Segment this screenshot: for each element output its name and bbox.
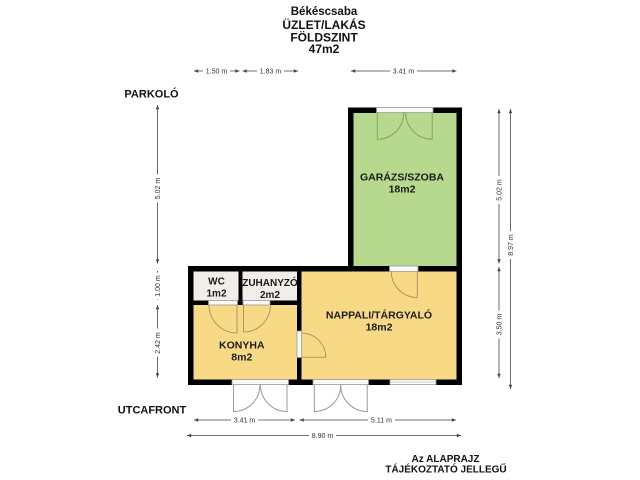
svg-text:GARÁZS/SZOBA: GARÁZS/SZOBA [360,171,444,184]
svg-text:5.02 m: 5.02 m [497,179,504,201]
svg-text:18m2: 18m2 [366,322,393,334]
svg-text:47m2: 47m2 [309,42,340,56]
svg-text:UTCAFRONT: UTCAFRONT [118,405,187,417]
svg-text:1.00 m: 1.00 m [155,275,162,297]
svg-text:5.02 m: 5.02 m [155,178,162,200]
svg-text:PARKOLÓ: PARKOLÓ [124,88,179,101]
svg-text:3.41 m: 3.41 m [393,69,415,76]
svg-text:1.50 m: 1.50 m [206,69,228,76]
svg-text:Az ALAPRAJZ: Az ALAPRAJZ [412,454,480,465]
svg-text:ZUHANYZÓ: ZUHANYZÓ [242,276,298,289]
svg-text:WC: WC [208,277,225,288]
svg-text:8.97 m: 8.97 m [508,234,515,256]
svg-text:8.90 m: 8.90 m [312,433,334,440]
svg-text:1m2: 1m2 [206,289,226,300]
svg-text:1.83 m: 1.83 m [260,69,282,76]
svg-text:TÁJÉKOZTATÓ JELLEGŰ: TÁJÉKOZTATÓ JELLEGŰ [385,463,506,476]
svg-text:18m2: 18m2 [389,184,416,196]
svg-text:2m2: 2m2 [260,290,280,301]
svg-text:3.41 m: 3.41 m [234,418,256,425]
svg-text:KONYHA: KONYHA [219,340,265,352]
svg-text:Békéscsaba: Békéscsaba [291,6,358,18]
svg-text:NAPPALI/TÁRGYALÓ: NAPPALI/TÁRGYALÓ [326,309,432,322]
svg-text:2.42 m: 2.42 m [155,332,162,354]
svg-text:5.11 m: 5.11 m [371,418,392,425]
svg-text:3.50 m: 3.50 m [497,314,504,336]
svg-text:8m2: 8m2 [231,352,252,364]
